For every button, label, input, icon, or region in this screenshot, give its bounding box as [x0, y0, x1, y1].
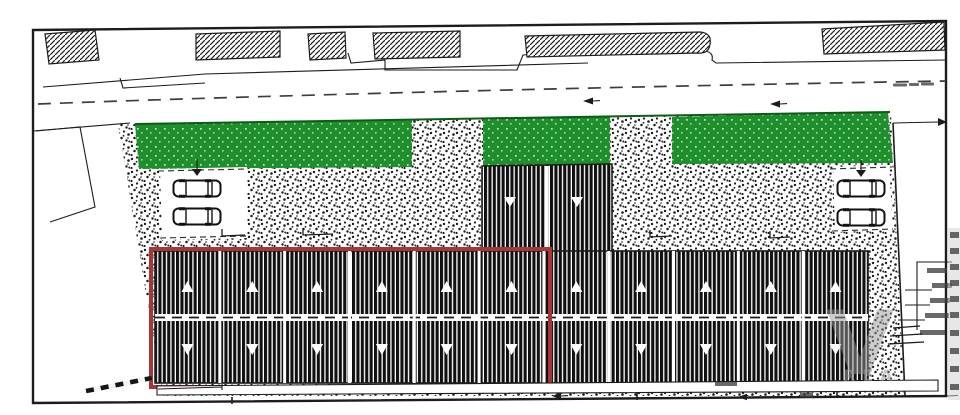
- neighbor-building-2: [196, 31, 280, 60]
- site-plan-drawing: V REA: [0, 0, 960, 415]
- left-parcel-outline: [36, 127, 95, 222]
- car: [838, 179, 885, 198]
- neighbor-building-1: [45, 30, 99, 64]
- car: [174, 179, 221, 198]
- watermark-caption: REA: [843, 366, 900, 385]
- parking-right: [830, 160, 893, 232]
- car: [838, 208, 885, 227]
- neighbor-building-4: [373, 31, 460, 59]
- road-curb-left: [43, 63, 588, 87]
- boundary-striped-line: [86, 378, 152, 391]
- parking-left: [158, 159, 247, 240]
- neighbor-building-3: [308, 32, 346, 60]
- main-building: [155, 251, 868, 383]
- site-plan-page: V REA: [0, 0, 960, 415]
- road-direction-arrow-1: [583, 98, 600, 105]
- neighbor-building-6: [822, 22, 945, 54]
- green-strip-right: [672, 112, 893, 164]
- green-strip-center: [483, 117, 610, 167]
- road-label-illegible: [893, 83, 934, 87]
- green-strips: [135, 112, 893, 169]
- car: [174, 207, 221, 226]
- road-direction-arrow-2: [770, 101, 787, 108]
- dimension-text-illegible: [715, 382, 737, 386]
- green-strip-left: [135, 119, 412, 169]
- edge-mark-column: [948, 228, 960, 400]
- neighbor-building-5: [525, 32, 710, 57]
- annex-building: [482, 164, 612, 254]
